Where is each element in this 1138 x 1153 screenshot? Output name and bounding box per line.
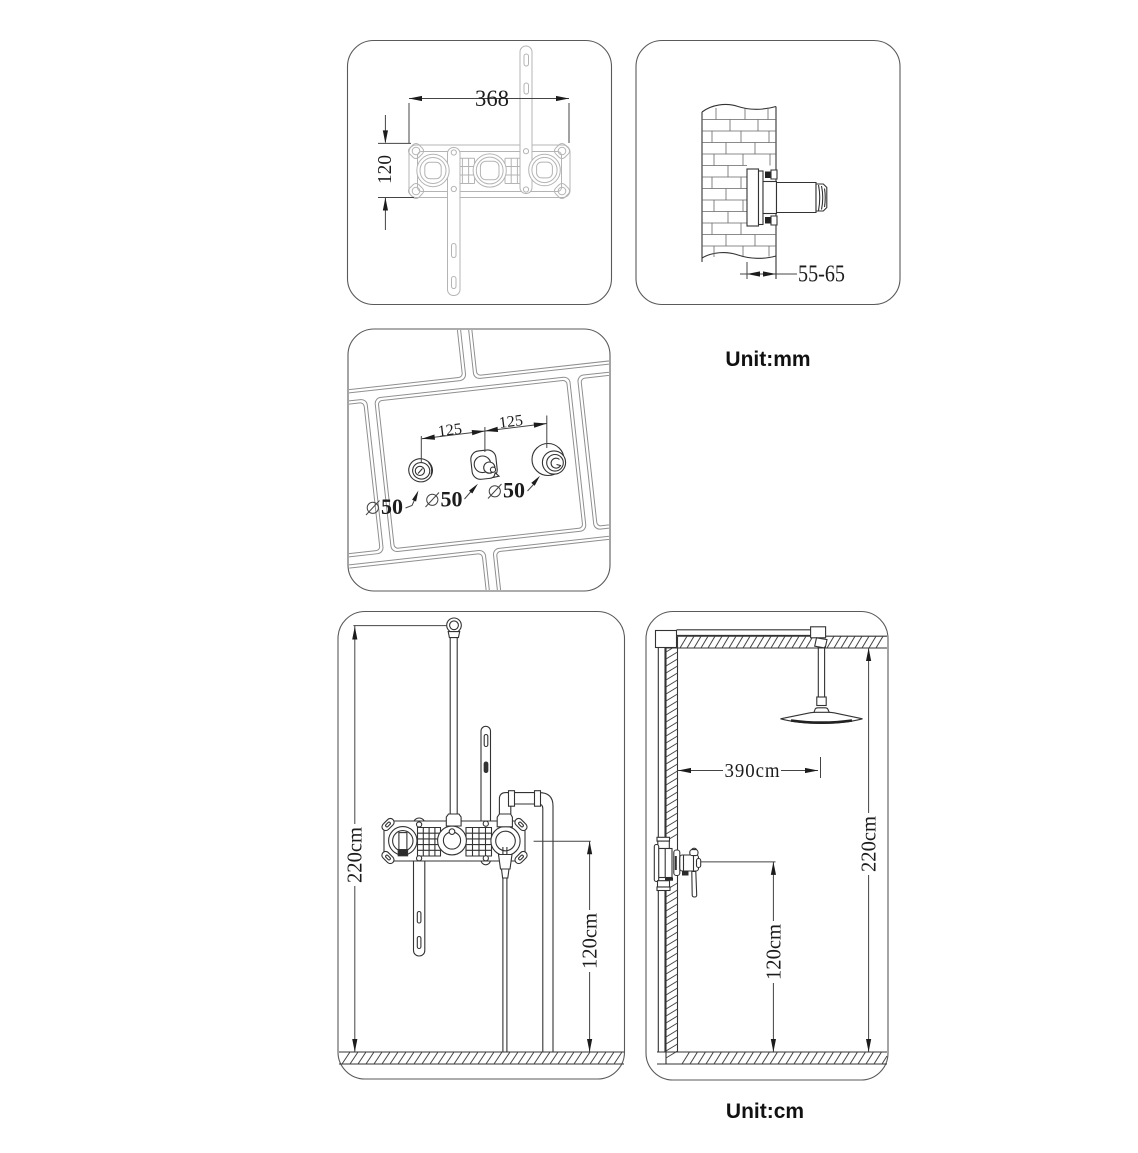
svg-text:55-65: 55-65 (798, 262, 845, 288)
svg-text:Unit:mm: Unit:mm (725, 348, 810, 371)
svg-text:125: 125 (498, 412, 524, 432)
svg-text:125: 125 (437, 421, 463, 441)
svg-text:Unit:cm: Unit:cm (726, 1100, 804, 1123)
svg-text:120cm: 120cm (578, 913, 602, 969)
svg-text:220cm: 220cm (857, 816, 881, 872)
svg-text:50: 50 (503, 478, 525, 503)
svg-text:220cm: 220cm (343, 827, 367, 883)
svg-text:368: 368 (475, 86, 509, 111)
svg-text:390cm: 390cm (725, 760, 781, 782)
svg-text:50: 50 (381, 494, 403, 519)
svg-text:120: 120 (374, 155, 396, 184)
svg-text:50: 50 (441, 487, 463, 512)
svg-text:120cm: 120cm (762, 924, 786, 980)
